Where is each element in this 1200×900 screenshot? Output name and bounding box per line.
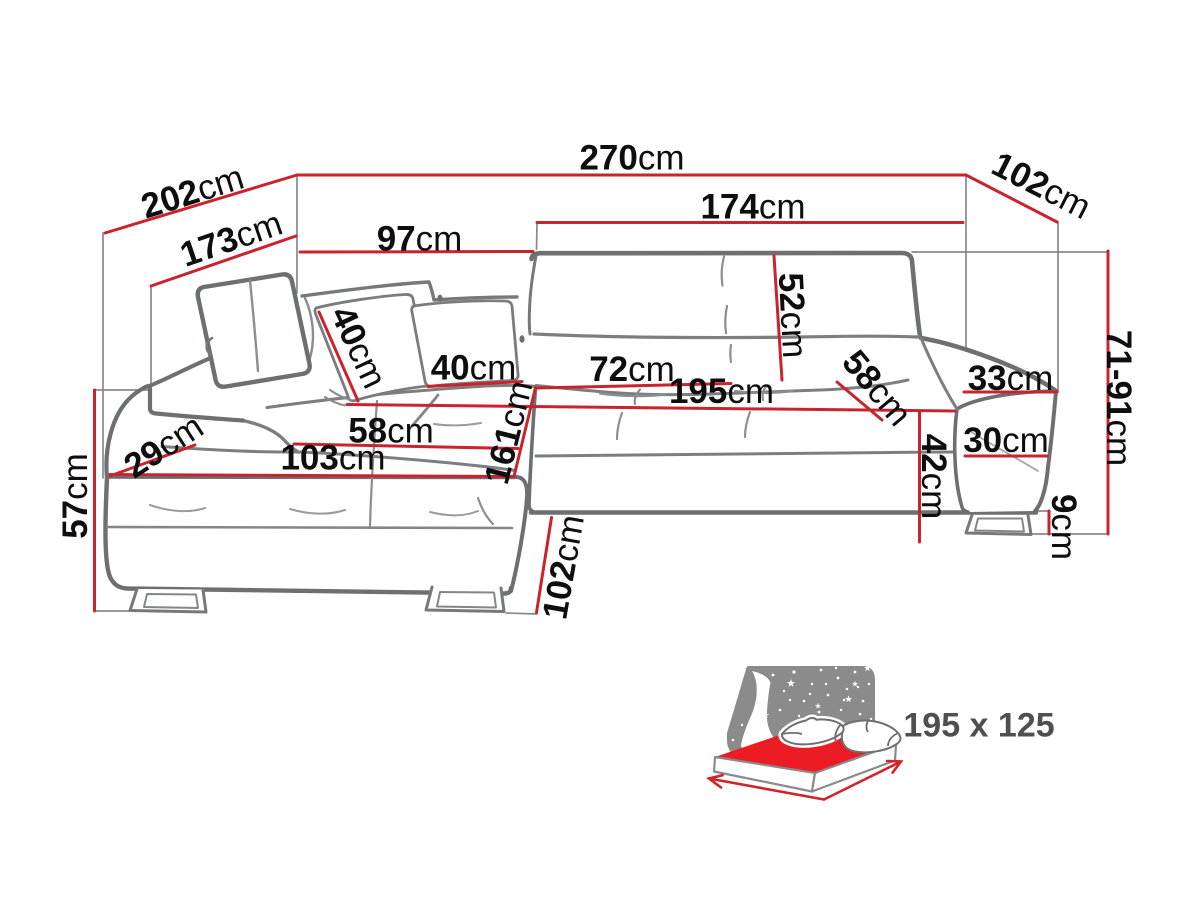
svg-text:195cm: 195cm bbox=[669, 372, 774, 411]
svg-text:103cm: 103cm bbox=[280, 439, 385, 478]
svg-text:195 x 125: 195 x 125 bbox=[903, 707, 1054, 745]
svg-text:72cm: 72cm bbox=[589, 350, 675, 389]
svg-text:202cm: 202cm bbox=[137, 158, 249, 227]
svg-text:9cm: 9cm bbox=[1044, 494, 1083, 560]
svg-text:173cm: 173cm bbox=[175, 204, 287, 275]
svg-text:102cm: 102cm bbox=[535, 512, 592, 622]
svg-text:97cm: 97cm bbox=[377, 220, 463, 259]
svg-text:71-91cm: 71-91cm bbox=[1099, 330, 1138, 466]
svg-text:33cm: 33cm bbox=[968, 359, 1054, 398]
svg-text:30cm: 30cm bbox=[963, 421, 1049, 460]
svg-text:174cm: 174cm bbox=[700, 188, 805, 227]
svg-text:52cm: 52cm bbox=[771, 272, 814, 360]
svg-text:42cm: 42cm bbox=[914, 434, 953, 520]
svg-text:270cm: 270cm bbox=[579, 139, 684, 178]
svg-text:57cm: 57cm bbox=[56, 453, 95, 539]
